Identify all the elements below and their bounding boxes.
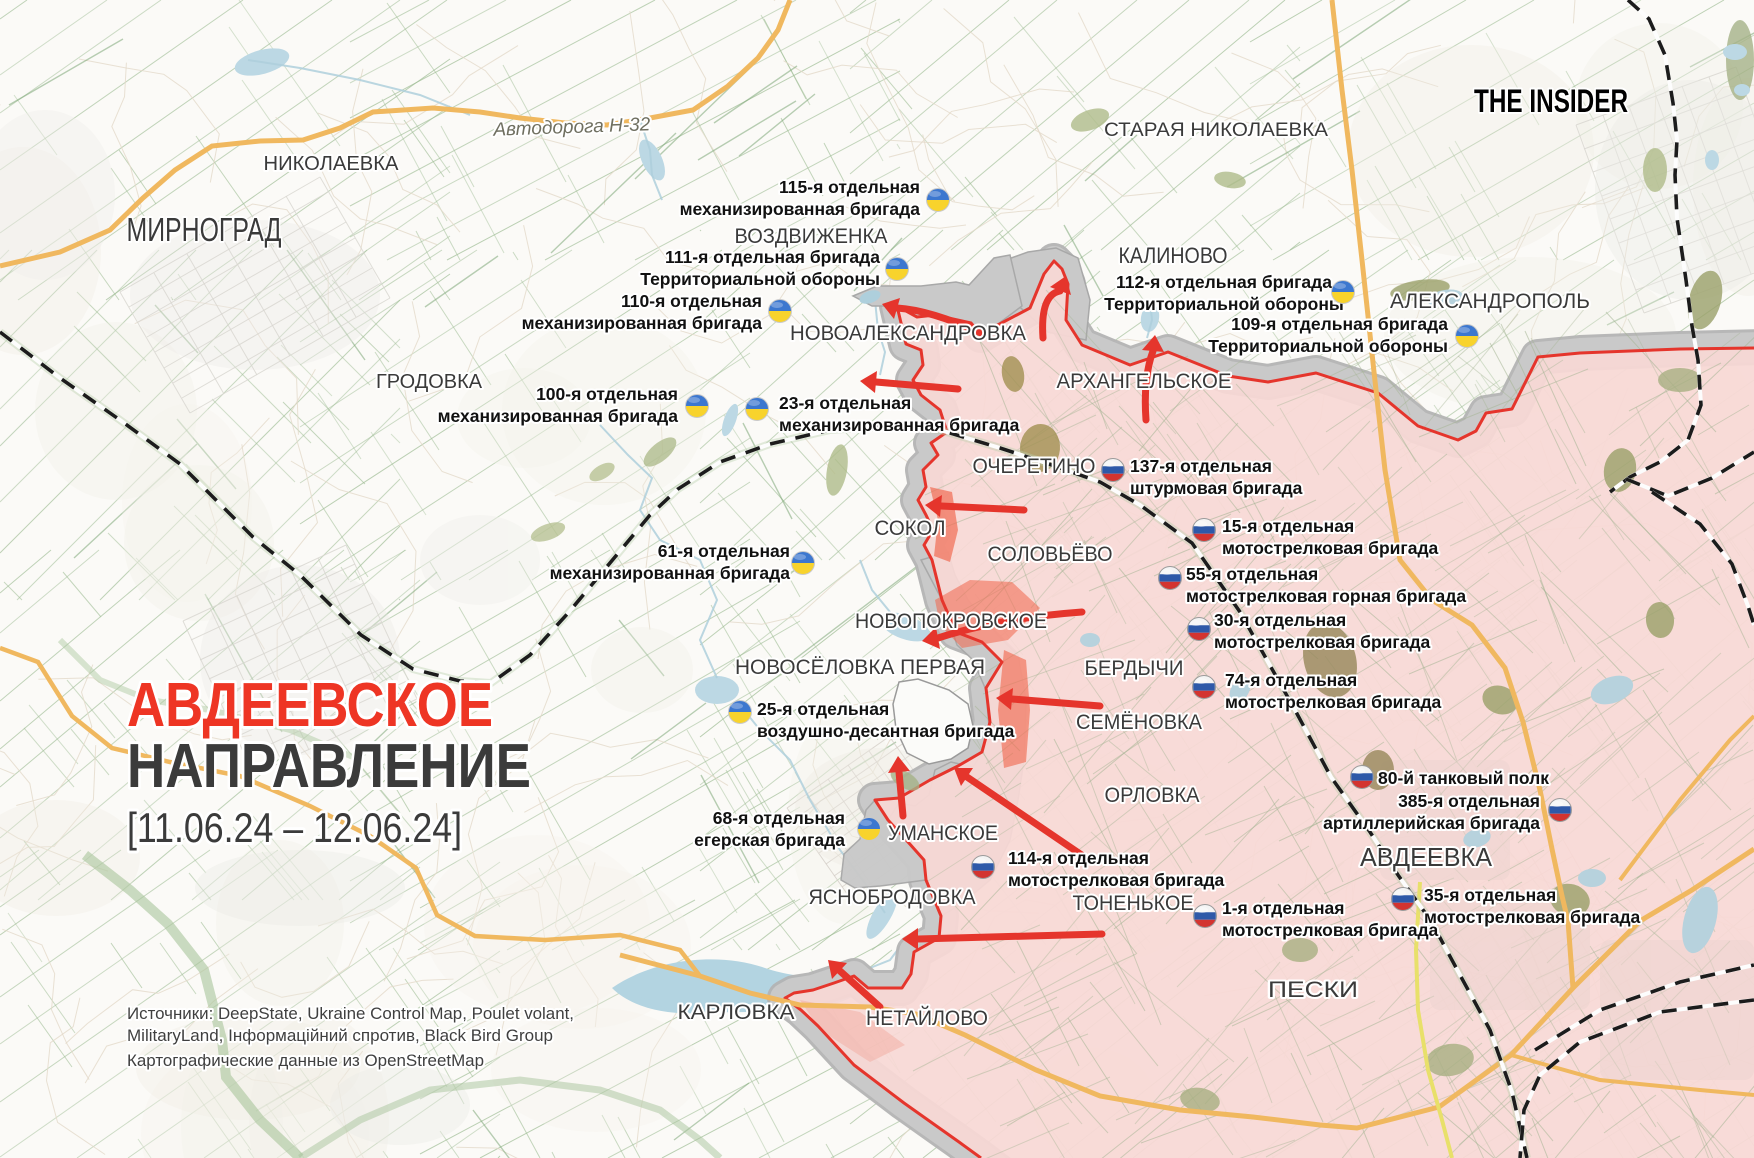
svg-text:68-я отдельная: 68-я отдельная <box>713 808 845 828</box>
svg-text:УМАНСКОЕ: УМАНСКОЕ <box>888 821 998 845</box>
svg-text:1-я отдельная: 1-я отдельная <box>1222 898 1344 918</box>
svg-text:385-я отдельная: 385-я отдельная <box>1398 791 1540 811</box>
svg-text:мотострелковая бригада: мотострелковая бригада <box>1214 632 1431 652</box>
svg-text:механизированная бригада: механизированная бригада <box>779 415 1020 435</box>
svg-text:74-я отдельная: 74-я отдельная <box>1225 670 1357 690</box>
svg-text:МИРНОГРАД: МИРНОГРАД <box>127 211 282 248</box>
svg-text:СОЛОВЬЁВО: СОЛОВЬЁВО <box>988 542 1113 566</box>
svg-text:61-я отдельная: 61-я отдельная <box>658 541 790 561</box>
svg-text:егерская бригада: егерская бригада <box>694 830 845 850</box>
svg-text:55-я отдельная: 55-я отдельная <box>1186 564 1318 584</box>
svg-text:ВОЗДВИЖЕНКА: ВОЗДВИЖЕНКА <box>735 224 889 248</box>
svg-text:30-я отдельная: 30-я отдельная <box>1214 610 1346 630</box>
svg-text:23-я отдельная: 23-я отдельная <box>779 393 911 413</box>
svg-text:ОРЛОВКА: ОРЛОВКА <box>1105 783 1201 807</box>
svg-text:штурмовая бригада: штурмовая бригада <box>1130 478 1303 498</box>
svg-text:механизированная бригада: механизированная бригада <box>680 199 921 219</box>
svg-text:механизированная бригада: механизированная бригада <box>438 406 679 426</box>
svg-text:Территориальной обороны: Территориальной обороны <box>1104 294 1344 314</box>
svg-text:Источники: DeepState, Ukraine: Источники: DeepState, Ukraine Control Ma… <box>127 1004 574 1023</box>
svg-text:СТАРАЯ НИКОЛАЕВКА: СТАРАЯ НИКОЛАЕВКА <box>1104 120 1328 141</box>
svg-text:115-я отдельная: 115-я отдельная <box>779 177 920 197</box>
svg-text:Территориальной обороны: Территориальной обороны <box>640 269 880 289</box>
svg-text:НОВОАЛЕКСАНДРОВКА: НОВОАЛЕКСАНДРОВКА <box>790 321 1027 345</box>
svg-text:СЕМЁНОВКА: СЕМЁНОВКА <box>1076 710 1203 734</box>
svg-text:ЯСНОБРОДОВКА: ЯСНОБРОДОВКА <box>809 885 977 909</box>
svg-text:ПЕСКИ: ПЕСКИ <box>1268 977 1358 1002</box>
svg-text:воздушно-десантная бригада: воздушно-десантная бригада <box>757 721 1015 741</box>
svg-text:НОВОСЁЛОВКА ПЕРВАЯ: НОВОСЁЛОВКА ПЕРВАЯ <box>735 655 985 679</box>
svg-text:Картографические данные из Ope: Картографические данные из OpenStreetMap <box>127 1051 484 1070</box>
svg-text:АВДЕЕВСКОЕ: АВДЕЕВСКОЕ <box>127 671 493 740</box>
svg-text:ОЧЕРЕТИНО: ОЧЕРЕТИНО <box>973 454 1096 478</box>
svg-text:НЕТАЙЛОВО: НЕТАЙЛОВО <box>866 1005 988 1030</box>
svg-text:КАЛИНОВО: КАЛИНОВО <box>1119 243 1228 268</box>
svg-text:15-я отдельная: 15-я отдельная <box>1222 516 1354 536</box>
svg-text:механизированная бригада: механизированная бригада <box>522 313 763 333</box>
svg-text:НОВОПОКРОВСКОЕ: НОВОПОКРОВСКОЕ <box>855 609 1047 633</box>
svg-text:MilitaryLand, Інформаційний сп: MilitaryLand, Інформаційний спротив, Bla… <box>127 1026 553 1045</box>
svg-text:[11.06.24 – 12.06.24]: [11.06.24 – 12.06.24] <box>127 804 462 851</box>
svg-text:АЛЕКСАНДРОПОЛЬ: АЛЕКСАНДРОПОЛЬ <box>1390 290 1590 313</box>
svg-text:мотострелковая бригада: мотострелковая бригада <box>1222 920 1439 940</box>
svg-text:НИКОЛАЕВКА: НИКОЛАЕВКА <box>264 152 399 175</box>
svg-text:АВДЕЕВКА: АВДЕЕВКА <box>1360 842 1493 872</box>
svg-text:80-й танковый полк: 80-й танковый полк <box>1378 768 1549 788</box>
svg-text:мотострелковая бригада: мотострелковая бригада <box>1424 907 1641 927</box>
svg-text:артиллерийская бригада: артиллерийская бригада <box>1323 813 1540 833</box>
svg-text:THE INSIDER: THE INSIDER <box>1474 83 1628 119</box>
svg-text:мотострелковая бригада: мотострелковая бригада <box>1225 692 1442 712</box>
svg-text:Территориальной обороны: Территориальной обороны <box>1208 336 1448 356</box>
svg-text:109-я отдельная бригада: 109-я отдельная бригада <box>1231 314 1448 334</box>
svg-text:ГРОДОВКА: ГРОДОВКА <box>376 371 483 393</box>
svg-text:25-я отдельная: 25-я отдельная <box>757 699 889 719</box>
svg-text:137-я отдельная: 137-я отдельная <box>1130 456 1272 476</box>
svg-text:БЕРДЫЧИ: БЕРДЫЧИ <box>1085 656 1184 680</box>
svg-text:111-я отдельная бригада: 111-я отдельная бригада <box>665 247 880 267</box>
svg-text:114-я отдельная: 114-я отдельная <box>1008 848 1149 868</box>
svg-text:ТОНЕНЬКОЕ: ТОНЕНЬКОЕ <box>1073 891 1194 915</box>
svg-text:СОКОЛ: СОКОЛ <box>875 516 946 540</box>
svg-text:механизированная бригада: механизированная бригада <box>550 563 791 583</box>
svg-text:мотострелковая бригада: мотострелковая бригада <box>1008 870 1225 890</box>
svg-text:НАПРАВЛЕНИЕ: НАПРАВЛЕНИЕ <box>127 732 531 801</box>
svg-text:35-я отдельная: 35-я отдельная <box>1424 885 1556 905</box>
svg-text:мотострелковая бригада: мотострелковая бригада <box>1222 538 1439 558</box>
svg-text:мотострелковая горная бригада: мотострелковая горная бригада <box>1186 586 1466 606</box>
svg-text:КАРЛОВКА: КАРЛОВКА <box>678 1000 796 1024</box>
svg-text:110-я отдельная: 110-я отдельная <box>621 291 762 311</box>
svg-text:100-я отдельная: 100-я отдельная <box>536 384 678 404</box>
svg-text:АРХАНГЕЛЬСКОЕ: АРХАНГЕЛЬСКОЕ <box>1057 369 1232 393</box>
svg-text:112-я отдельная бригада: 112-я отдельная бригада <box>1116 272 1332 292</box>
